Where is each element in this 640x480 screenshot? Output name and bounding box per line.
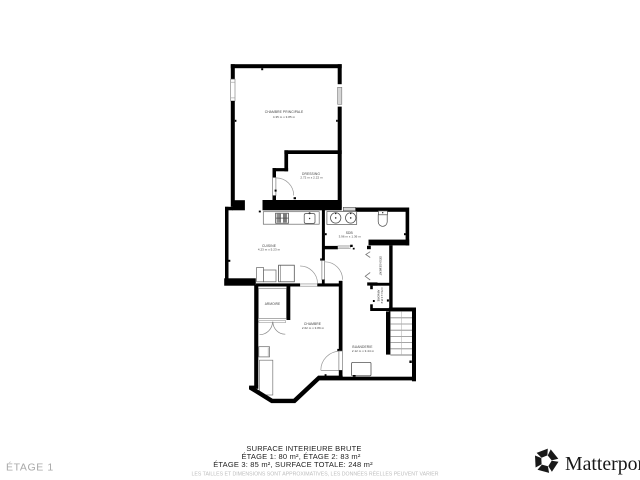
svg-text:2.12 m x 3.44 m: 2.12 m x 3.44 m: [352, 349, 375, 353]
svg-text:3.96 m x 1.36 m: 3.96 m x 1.36 m: [339, 234, 362, 238]
svg-text:Matterport: Matterport: [565, 453, 640, 475]
svg-text:0.74 m x 2.08 m: 0.74 m x 2.08 m: [380, 287, 382, 304]
svg-text:4.23 m x 5.23 m: 4.23 m x 5.23 m: [258, 248, 281, 252]
svg-text:ÉTAGE 1: ÉTAGE 1: [6, 461, 54, 474]
svg-text:4.35 m x 3.85 m: 4.35 m x 3.85 m: [273, 115, 296, 119]
svg-text:2.72 m x 2.22 m: 2.72 m x 2.22 m: [300, 176, 323, 180]
svg-text:2.62 m x 3.89 m: 2.62 m x 3.89 m: [302, 326, 325, 330]
svg-text:ARMOIRE: ARMOIRE: [265, 302, 281, 306]
svg-text:LES TAILLES ET DIMENSIONS SONT: LES TAILLES ET DIMENSIONS SONT APPROXIMA…: [192, 471, 439, 478]
svg-text:CHAMBRE PRINCIPALE: CHAMBRE PRINCIPALE: [265, 110, 304, 114]
svg-text:ÉTAGE 3: 85 m², SURFACE TOTALE: ÉTAGE 3: 85 m², SURFACE TOTALE: 248 m²: [213, 460, 373, 469]
svg-text:ARMOIRE: ARMOIRE: [377, 290, 380, 302]
